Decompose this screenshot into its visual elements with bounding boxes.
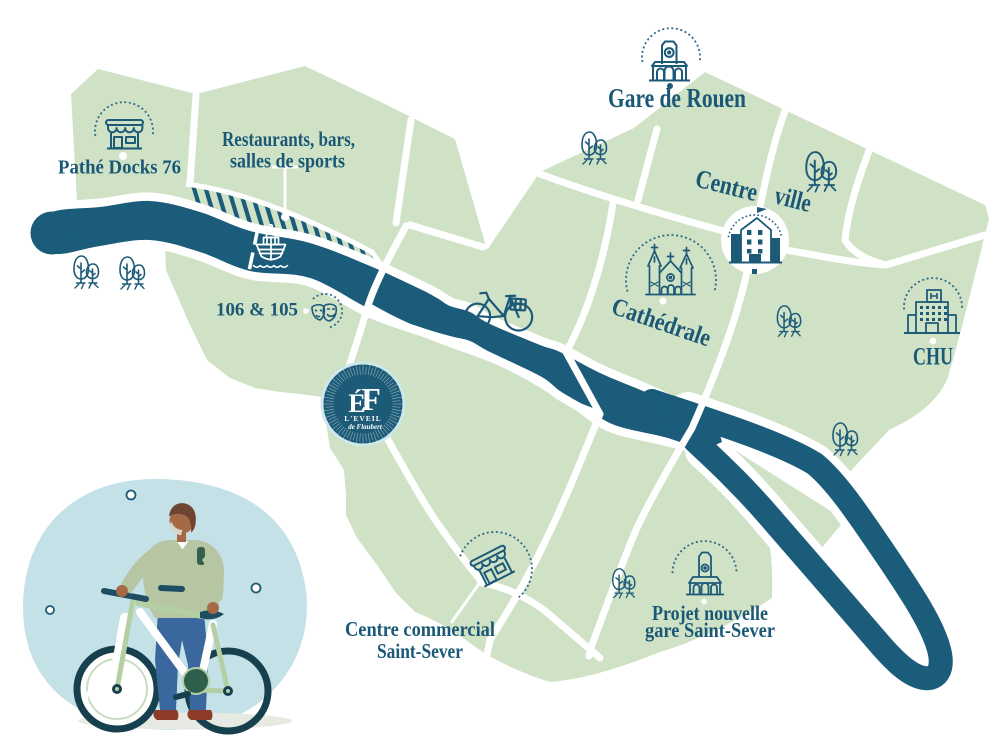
svg-text:Gare de Rouen: Gare de Rouen xyxy=(608,83,746,113)
svg-text:gare Saint-Sever: gare Saint-Sever xyxy=(645,618,775,642)
svg-text:CHU: CHU xyxy=(913,344,953,371)
svg-text:de Flaubert: de Flaubert xyxy=(348,423,383,431)
svg-text:L'EVEIL: L'EVEIL xyxy=(344,414,381,423)
svg-text:Pathé Docks 76: Pathé Docks 76 xyxy=(58,157,181,179)
svg-text:F: F xyxy=(361,381,381,417)
svg-text:Centre commercial: Centre commercial xyxy=(345,617,495,641)
svg-text:salles de sports: salles de sports xyxy=(230,149,345,173)
svg-text:106 & 105: 106 & 105 xyxy=(216,300,298,321)
svg-text:Saint-Sever: Saint-Sever xyxy=(377,639,463,663)
svg-text:Restaurants, bars,: Restaurants, bars, xyxy=(222,127,355,151)
